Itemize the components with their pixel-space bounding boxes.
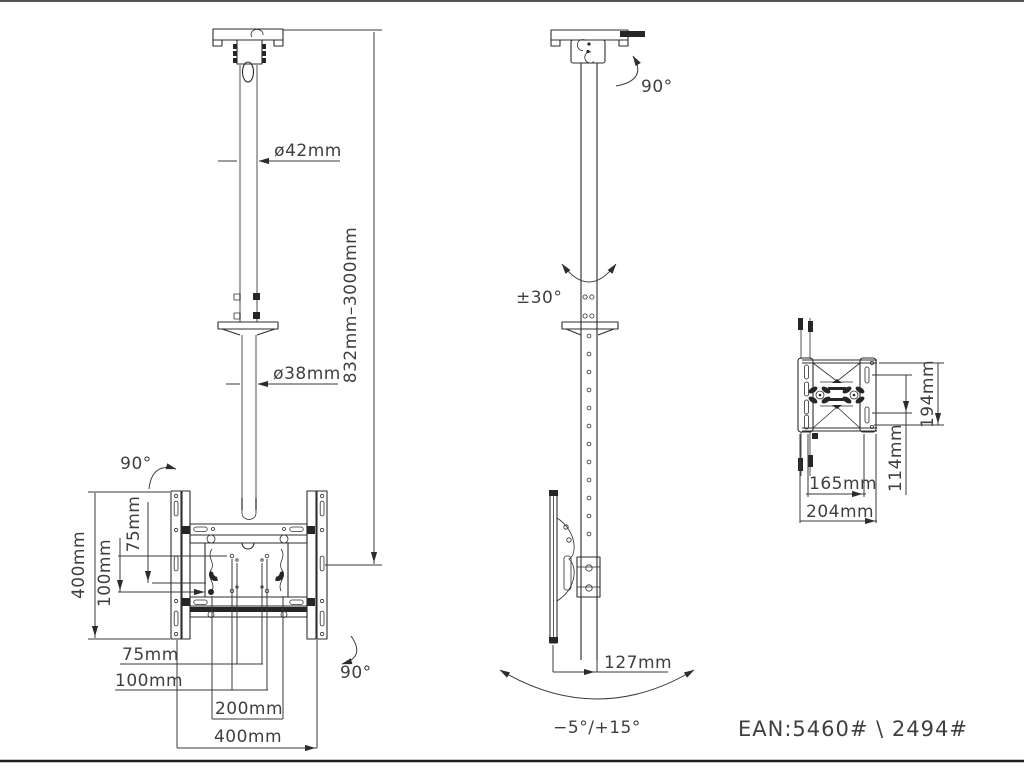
top-165-label: 165mm <box>809 474 877 494</box>
front-drop-dim-lines <box>283 30 382 565</box>
front-swivel-bottom-arrow <box>342 636 357 664</box>
side-rotation-arrow <box>616 56 638 86</box>
front-hanger-slot <box>243 62 254 82</box>
front-mount-block-knobs <box>233 44 266 63</box>
front-right-rail-holes <box>320 494 324 635</box>
front-vesa-plate-hooks <box>209 571 284 581</box>
front-dia42-label: ø42mm <box>274 141 342 161</box>
top-194-label: 194mm <box>918 360 938 428</box>
side-pole-bolts <box>583 295 594 318</box>
side-pole <box>581 63 597 660</box>
top-204-label: 204mm <box>806 502 874 522</box>
top-right-plate <box>860 358 876 432</box>
front-hole-leader-arrows <box>180 556 227 592</box>
front-75v-label: 75mm <box>124 496 144 553</box>
top-wing-nut-left <box>807 385 831 405</box>
front-ceiling-plate <box>213 29 283 46</box>
top-right-plate-slots <box>865 361 874 428</box>
side-rotation-icon <box>577 40 594 63</box>
front-400h-label: 400mm <box>214 727 282 747</box>
front-100v-label: 100mm <box>95 539 115 607</box>
top-view: 194mm 114mm 165mm 204mm <box>798 318 944 523</box>
side-swivel-arc <box>562 264 616 282</box>
side-tilt-label: −5°/+15° <box>553 718 641 738</box>
side-127-label: 127mm <box>604 653 672 673</box>
side-tilt-arc <box>500 670 694 699</box>
front-vesa-plate-curves <box>210 549 284 591</box>
front-pole-end-cap <box>242 498 256 519</box>
front-swivel-top-label: 90° <box>120 454 152 474</box>
top-center-bars <box>828 379 846 409</box>
front-drop-range-label: 832mm–3000mm <box>341 227 361 383</box>
front-200h-label: 200mm <box>215 699 283 719</box>
front-vesa-plate <box>205 543 288 597</box>
front-swivel-top-arrow <box>149 468 176 489</box>
front-vesa-bolt <box>208 589 214 595</box>
side-view: 90° ±30° 127mm −5°/+15° <box>500 30 694 738</box>
front-bottom-ext-lines <box>177 559 317 748</box>
front-vesa-holes <box>230 554 269 593</box>
front-100h-label: 100mm <box>115 671 183 691</box>
front-upper-pole <box>240 64 257 322</box>
front-dia38-label: ø38mm <box>273 364 341 384</box>
technical-drawing-canvas: 90° 90° 832mm–3000mm ø42mm ø38mm 400mm 7… <box>0 0 1024 768</box>
side-rotation-icon-dots <box>586 42 590 53</box>
drawing-page: 90° 90° 832mm–3000mm ø42mm ø38mm 400mm 7… <box>0 0 1024 768</box>
front-mount-block <box>237 40 262 64</box>
front-collar <box>218 322 278 335</box>
top-114-label: 114mm <box>886 424 906 492</box>
front-top-bar <box>190 524 307 543</box>
top-left-plate-slots <box>805 365 809 429</box>
front-pole-bolts-left <box>234 294 240 319</box>
side-ceiling-plate-flange <box>620 31 645 37</box>
front-left-rail-holes <box>174 494 178 635</box>
front-ceiling-plate-hook <box>251 29 263 37</box>
top-pole-stubs <box>801 318 810 476</box>
front-lower-pole <box>242 335 256 510</box>
front-view: 90° 90° 832mm–3000mm ø42mm ø38mm 400mm 7… <box>69 29 382 748</box>
front-400v-label: 400mm <box>69 531 89 599</box>
side-swivel-label: ±30° <box>516 288 562 308</box>
top-left-plate <box>798 358 813 432</box>
ean-code-text: EAN:5460# \ 2494# <box>738 717 968 741</box>
side-link-bar <box>564 556 571 590</box>
side-pole-holes <box>587 334 591 536</box>
front-swivel-bottom-label: 90° <box>340 663 372 683</box>
side-collar <box>562 322 618 335</box>
side-hook-curve <box>557 518 574 601</box>
front-75h-label: 75mm <box>122 645 179 665</box>
side-rotation-label: 90° <box>641 77 673 97</box>
